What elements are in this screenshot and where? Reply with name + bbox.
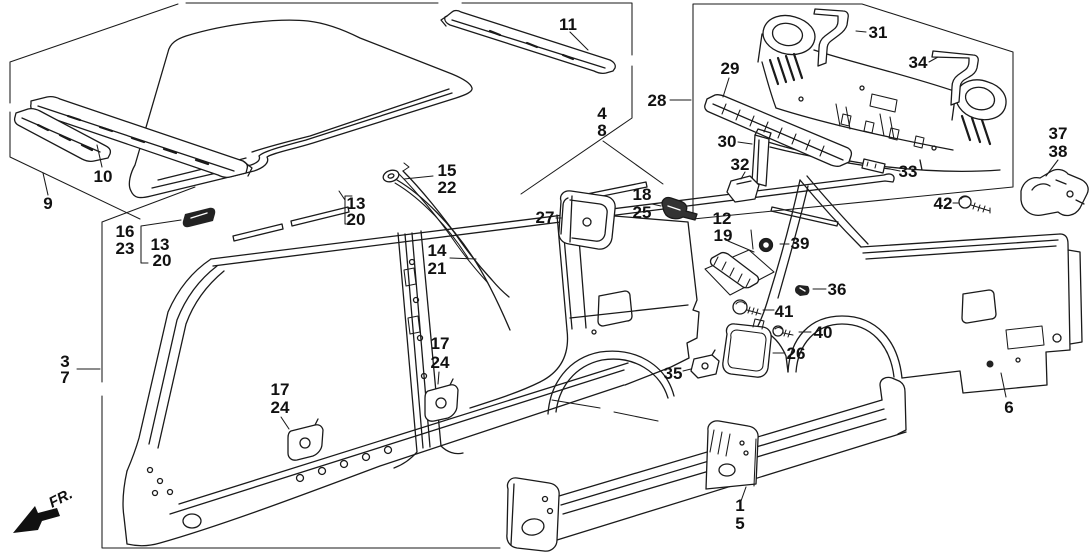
callout-39: 39 [791,234,810,253]
roof-slat-11 [441,11,615,74]
callout-7: 7 [60,368,69,387]
callout-42: 42 [934,194,953,213]
diagram-canvas: 9 10 11 16 23 13 20 13 20 15 22 14 21 4 … [0,0,1090,554]
callout-21: 21 [428,259,447,278]
callout-30: 30 [718,132,737,151]
callout-41: 41 [775,302,794,321]
callout-17-front: 17 [271,380,290,399]
fuel-lid-26 [723,319,771,377]
callout-34: 34 [909,53,928,72]
callout-9: 9 [43,194,52,213]
callout-5: 5 [735,514,744,533]
callout-18: 18 [633,185,652,204]
callout-24-rear: 24 [431,353,450,372]
callout-29: 29 [721,59,740,78]
gutter-strip-12-19 [705,250,774,295]
bracket-37-38 [1021,170,1088,216]
callout-8: 8 [597,121,606,140]
clip-18-25 [662,198,697,220]
parts-diagram: 9 10 11 16 23 13 20 13 20 15 22 14 21 4 … [0,0,1090,554]
latch-35 [691,350,719,378]
callout-35: 35 [664,364,683,383]
callout-32: 32 [731,155,750,174]
jack-bracket-rear-17-24 [425,379,458,421]
callout-20-left: 20 [153,251,172,270]
callout-28: 28 [648,91,667,110]
callout-37: 37 [1049,124,1068,143]
callout-22: 22 [438,178,457,197]
nut-36 [795,285,809,296]
callout-17-rear: 17 [431,334,450,353]
callout-19: 19 [714,226,733,245]
molding-clip-16-23 [183,208,216,227]
callout-20-mid: 20 [347,210,366,229]
plate-33 [862,159,885,173]
callout-14: 14 [428,241,447,260]
callout-40: 40 [814,323,833,342]
callout-23: 23 [116,239,135,258]
fr-direction-indicator: FR. [13,485,75,533]
screw-40 [773,326,793,337]
callout-10: 10 [94,167,113,186]
jack-bracket-front-17-24 [288,419,323,460]
callout-24-front: 24 [271,398,290,417]
callout-6: 6 [1004,398,1013,417]
fuel-recess-27 [559,191,615,249]
callout-27: 27 [536,208,555,227]
fr-label: FR. [46,485,75,511]
callout-25: 25 [633,203,652,222]
shelf-support-29 [705,95,852,167]
callout-1: 1 [735,496,744,515]
callout-31: 31 [869,23,888,42]
bolt-41 [733,300,761,315]
callout-33: 33 [899,162,918,181]
callout-26: 26 [787,344,806,363]
clip-32 [727,176,759,202]
bolt-42 [959,196,990,213]
grommet-39 [760,239,773,252]
callout-36: 36 [828,280,847,299]
callout-11: 11 [559,15,577,34]
bracket-31 [814,9,848,66]
roof-panel [129,20,472,197]
callout-38: 38 [1049,142,1068,161]
